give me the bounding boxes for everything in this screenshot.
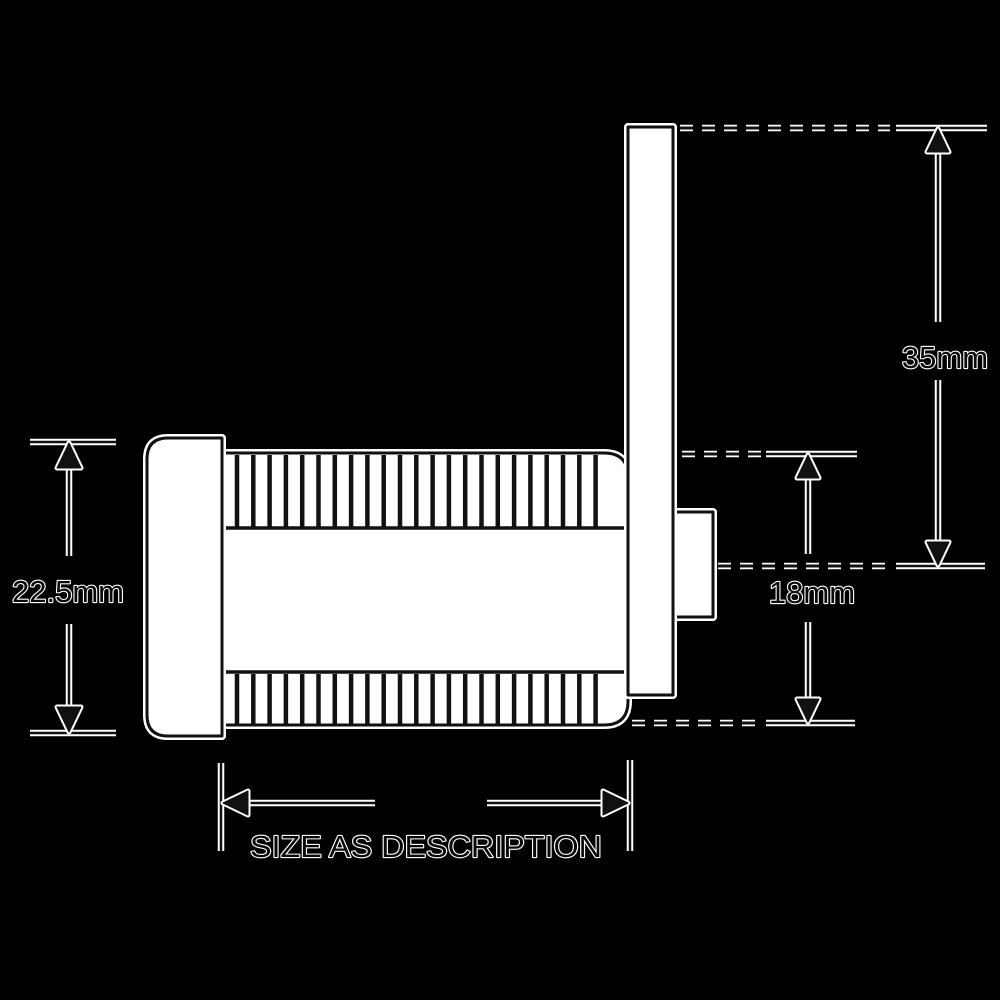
bezel: [147, 438, 222, 736]
cam-plate: [628, 127, 673, 695]
label-fixing-height: 18mm: [769, 575, 855, 610]
label-body-length: SIZE AS DESCRIPTION: [250, 829, 602, 864]
label-cam-height: 35mm: [902, 340, 988, 375]
label-body-diameter: 22.5mm: [12, 574, 124, 609]
camlock-technical-diagram: 22.5mm 35mm 18mm SIZE AS DESCRIPTION: [0, 0, 1000, 1000]
barrel-outline: [222, 453, 628, 725]
drawing-canvas: 22.5mm 35mm 18mm SIZE AS DESCRIPTION: [0, 0, 1000, 1000]
